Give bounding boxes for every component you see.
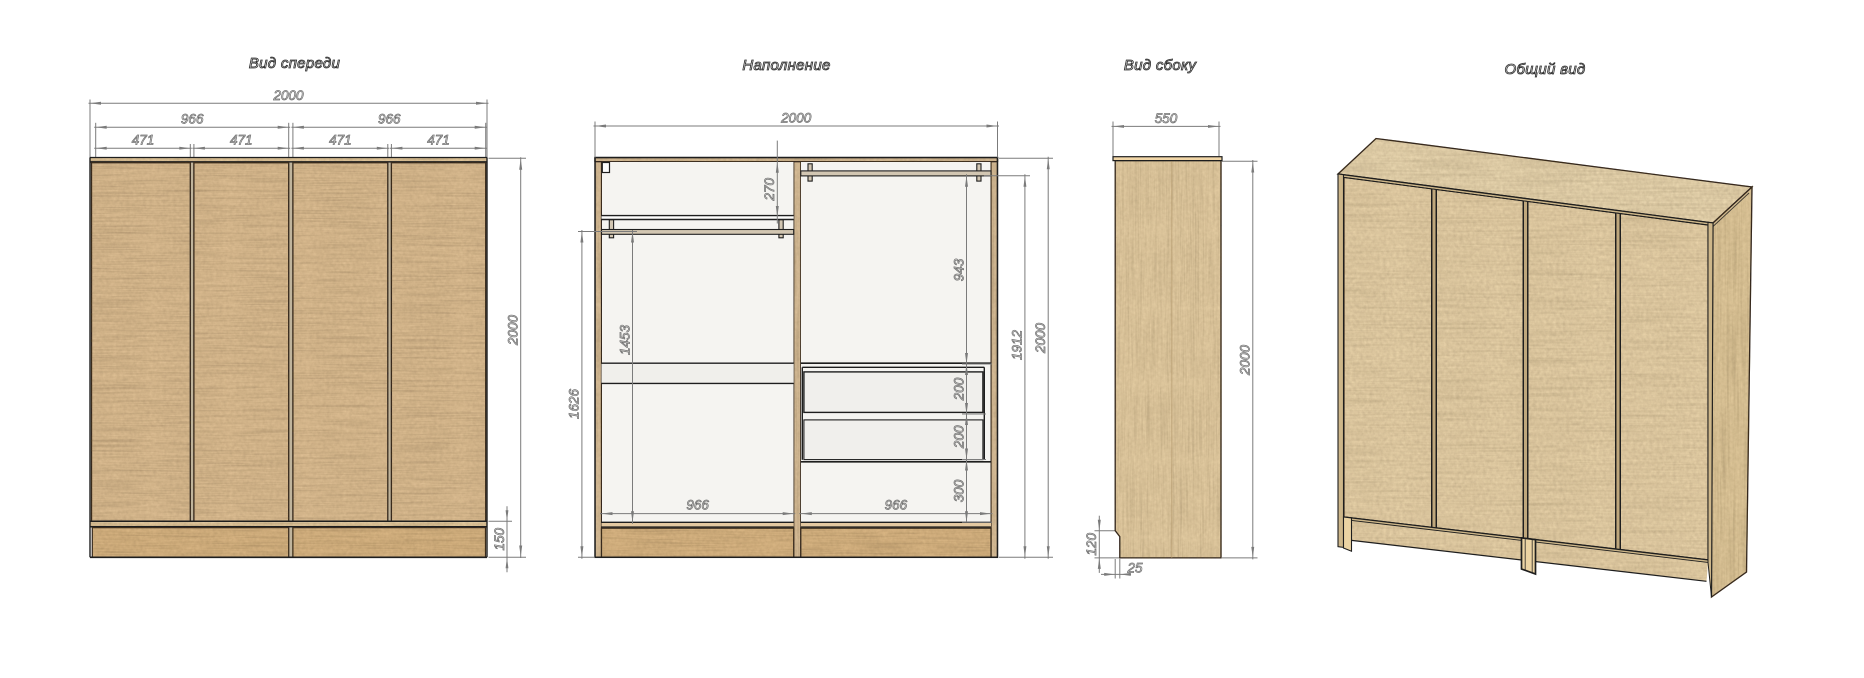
svg-text:120: 120 bbox=[1084, 533, 1099, 556]
svg-text:Наполнение: Наполнение bbox=[742, 57, 830, 74]
svg-text:200: 200 bbox=[951, 425, 966, 449]
svg-text:471: 471 bbox=[329, 133, 352, 148]
svg-text:2000: 2000 bbox=[1238, 344, 1253, 376]
svg-text:Общий вид: Общий вид bbox=[1505, 61, 1586, 78]
svg-text:471: 471 bbox=[427, 133, 450, 148]
svg-text:2000: 2000 bbox=[780, 111, 812, 126]
svg-text:550: 550 bbox=[1155, 111, 1178, 126]
svg-text:Вид спереди: Вид спереди bbox=[249, 55, 341, 72]
svg-text:150: 150 bbox=[492, 527, 507, 550]
svg-text:270: 270 bbox=[762, 177, 777, 201]
svg-text:2000: 2000 bbox=[506, 314, 521, 346]
svg-text:1453: 1453 bbox=[617, 324, 632, 355]
svg-text:966: 966 bbox=[686, 498, 709, 513]
svg-text:1626: 1626 bbox=[567, 388, 582, 419]
svg-text:966: 966 bbox=[378, 112, 401, 127]
svg-text:966: 966 bbox=[181, 112, 204, 127]
svg-text:25: 25 bbox=[1127, 561, 1144, 576]
svg-text:Вид сбоку: Вид сбоку bbox=[1124, 57, 1198, 74]
svg-text:471: 471 bbox=[230, 133, 253, 148]
svg-text:200: 200 bbox=[951, 377, 966, 401]
svg-text:1912: 1912 bbox=[1010, 329, 1025, 360]
svg-text:300: 300 bbox=[951, 479, 966, 502]
svg-text:2000: 2000 bbox=[272, 88, 304, 103]
svg-text:471: 471 bbox=[132, 133, 155, 148]
svg-text:2000: 2000 bbox=[1033, 322, 1048, 354]
svg-text:966: 966 bbox=[885, 498, 908, 513]
svg-text:943: 943 bbox=[951, 258, 966, 281]
